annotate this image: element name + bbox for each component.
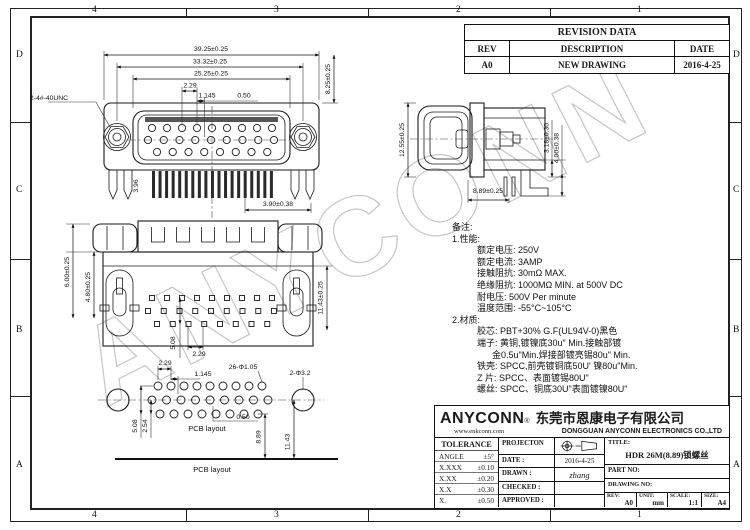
revision-table: REVISION DATA REV DESCRIPTION DATE A0 NE…	[464, 24, 730, 74]
note-item: 螺丝: SPCC、铜底30U"表面镀镍80U"	[452, 384, 726, 396]
dim-pcb-pitch: 2.29	[158, 360, 171, 367]
tolerance-value: ±5°	[483, 451, 494, 461]
dim-rear-row-span: 5.08	[170, 336, 177, 349]
pcb-layout-footer-label: PCB layout	[193, 465, 231, 474]
note-item: 额定电压: 250V	[452, 245, 726, 257]
company-header: ANYCONN® 东莞市恩康电子有限公司 www.enkconn.com DON…	[435, 406, 729, 438]
approved-row: APPROVED :	[499, 495, 604, 507]
company-name-cn: 东莞市恩康电子有限公司	[536, 407, 685, 427]
revision-cell-date: 2016-4-25	[675, 57, 729, 73]
drawing-sheet: 4 3 2 1 4 3 2 1 D C B A D C B A ANYCONN	[0, 0, 750, 530]
revision-table-title: REVISION DATA	[465, 25, 729, 41]
notes-section-performance: 1.性能:	[452, 234, 726, 246]
dim-pcb-pin-holes: 26-Φ1.05	[229, 364, 258, 371]
size-value: A4	[717, 499, 726, 507]
company-name-en: DONGGUAN ANYCONN ELECTRONICS CO.,LTD	[562, 427, 722, 437]
front-view: 39.25±0.25 33.32±0.25 25.25±0.25 2.29 1.…	[30, 46, 338, 218]
revision-cell-description: NEW DRAWING	[510, 57, 675, 73]
tolerance-header: TOLERANCE	[435, 438, 498, 451]
note-item: 金0.5u"Min.焊接部镀亮锡80u" Min.	[452, 350, 726, 362]
approved-value	[555, 495, 604, 507]
rev-value: A0	[624, 499, 633, 507]
note-item: 接触阻抗: 30mΩ MAX.	[452, 268, 726, 280]
revision-header-rev: REV	[465, 41, 510, 56]
company-website: www.enkconn.com	[454, 427, 504, 437]
title-label: TITLE:	[608, 439, 630, 446]
drawn-row: DRAWN : zhang	[499, 468, 604, 481]
approved-label: APPROVED :	[499, 495, 555, 507]
revision-table-header-row: REV DESCRIPTION DATE	[465, 41, 729, 57]
dim-pcb-mount-holes: 2-Φ3.2	[290, 370, 311, 377]
pcb-layout-label: PCB layout	[188, 424, 226, 433]
revision-cell-rev: A0	[465, 57, 510, 73]
approval-table: PROJECTON	[499, 438, 605, 507]
tolerance-row: X.XX±0.20	[435, 473, 498, 484]
dim-front-leg-height: 3.96	[133, 179, 140, 192]
revision-header-date: DATE	[675, 41, 729, 56]
dim-front-total-width: 39.25±0.25	[194, 46, 228, 53]
note-item: 铁壳: SPCC,前壳镀铜底50U' 镍80u"Min.	[452, 361, 726, 373]
dim-rear-h-total: 11.43±0.25	[318, 281, 325, 315]
scale-label: SCALE:	[670, 493, 690, 499]
drawn-label: DRAWN :	[499, 468, 555, 480]
dim-front-thread-callout: 2-4#-40UNC	[30, 95, 68, 102]
date-value: 2016-4-25	[555, 455, 604, 467]
title-row: TITLE: HDR 26M(8.89)锁螺丝	[605, 438, 729, 464]
unit-cell: UNIT: mm	[637, 493, 668, 507]
dim-side-depth: 8.89±0.25	[473, 188, 503, 195]
revision-header-description: DESCRIPTION	[510, 41, 675, 56]
dim-side-tail-offset1: 3.18±0.30	[544, 123, 551, 153]
dim-pcb-mount-edge-dist: 11.43	[285, 434, 292, 451]
drawn-value: zhang	[555, 468, 604, 480]
dim-front-half-pitch: 1.145	[198, 93, 215, 100]
dim-pcb-row-offset: 0.50	[236, 414, 249, 421]
scale-value: 1:1	[689, 499, 698, 507]
dim-pcb-half-pitch: 1.145	[194, 371, 211, 378]
revision-table-row: A0 NEW DRAWING 2016-4-25	[465, 57, 729, 73]
notes-title: 备注:	[452, 222, 726, 234]
note-item: 绝缘阻抗: 1000MΩ MIN. at 500V DC	[452, 280, 726, 292]
dim-rear-pitch: 2.29	[192, 351, 205, 358]
tolerance-row: X.X±0.30	[435, 484, 498, 495]
tolerance-row: ANGLE±5°	[435, 451, 498, 462]
note-item: 额定电流: 3AMP	[452, 257, 726, 269]
size-cell: SIZE: A4	[702, 493, 729, 507]
drawing-info: TITLE: HDR 26M(8.89)锁螺丝 PART NO: DRAWING…	[605, 438, 729, 507]
dim-rear-h-top: 6.00±0.25	[64, 257, 71, 287]
dim-side-tail-offset2: 4.00±0.38	[554, 133, 561, 163]
tolerance-label: ANGLE	[439, 451, 464, 461]
dim-front-screw-span: 33.32±0.25	[193, 59, 227, 66]
tolerance-value: ±0.30	[477, 484, 494, 494]
date-label: DATE :	[499, 455, 555, 467]
drawing-no-row: DRAWING NO:	[605, 478, 729, 492]
checked-row: CHECKED :	[499, 482, 604, 495]
projection-symbol-icon	[555, 438, 604, 454]
tolerance-value: ±0.20	[477, 473, 494, 483]
dim-front-shroud-width: 25.25±0.25	[194, 71, 228, 78]
drawing-title: HDR 26M(8.89)锁螺丝	[605, 449, 729, 461]
rev-label: REV:	[607, 493, 620, 499]
title-block: ANYCONN® 东莞市恩康电子有限公司 www.enkconn.com DON…	[434, 405, 730, 509]
tolerance-label: X.XX	[439, 473, 457, 483]
checked-label: CHECKED :	[499, 482, 555, 494]
projection-row: PROJECTON	[499, 438, 604, 455]
dim-front-height: 8.25±0.25	[325, 64, 332, 94]
checked-value	[555, 482, 604, 494]
dim-rear-h-mid: 4.80±0.25	[85, 272, 92, 302]
dim-front-pin-length: 3.90±0.38	[263, 201, 293, 208]
tolerance-row: X.±0.50	[435, 495, 498, 506]
note-item: 胶芯: PBT+30% G.F(UL94V-0)黑色	[452, 326, 726, 338]
tolerance-row: X.XXX±0.10	[435, 462, 498, 473]
scale-cell: SCALE: 1:1	[668, 493, 702, 507]
note-item: 耐电压: 500V Per minute	[452, 292, 726, 304]
company-logo: ANYCONN	[440, 410, 524, 428]
size-label: SIZE:	[704, 493, 718, 499]
dim-pcb-row-span: 5.08	[132, 419, 139, 432]
tolerance-label: X.X	[439, 484, 451, 494]
rev-cell: REV: A0	[605, 493, 637, 507]
date-row: DATE : 2016-4-25	[499, 455, 604, 468]
unit-value: mm	[652, 499, 664, 507]
note-item: 端子: 黄铜,镀镍底30u" Min.接触部镀	[452, 338, 726, 350]
dim-pcb-row-gap: 2.54	[142, 419, 149, 432]
dim-pcb-edge-dist: 8.89	[256, 430, 263, 443]
tolerance-value: ±0.50	[477, 495, 494, 506]
tolerance-label: X.XXX	[439, 462, 462, 472]
projection-label: PROJECTON	[499, 438, 555, 454]
notes-block: 备注: 1.性能: 额定电压: 250V 额定电流: 3AMP 接触阻抗: 30…	[452, 222, 726, 396]
part-no-row: PART NO:	[605, 464, 729, 478]
tolerance-value: ±0.10	[477, 462, 494, 472]
dim-front-row-offset: 0.50	[237, 93, 250, 100]
tolerance-label: X.	[439, 495, 446, 506]
tolerance-table: TOLERANCE ANGLE±5° X.XXX±0.10 X.XX±0.20 …	[435, 438, 499, 507]
note-item: 温度范围: -55°C~105°C	[452, 303, 726, 315]
notes-section-material: 2.材质:	[452, 315, 726, 327]
dim-side-height: 12.55±0.25	[399, 123, 406, 157]
registered-mark-icon: ®	[524, 418, 529, 425]
drawing-meta-row: REV: A0 UNIT: mm SCALE: 1:1 SIZE: A4	[605, 492, 729, 507]
dim-front-pitch: 2.29	[183, 83, 196, 90]
note-item: Z 片: SPCC、表面镀锡80U"	[452, 373, 726, 385]
